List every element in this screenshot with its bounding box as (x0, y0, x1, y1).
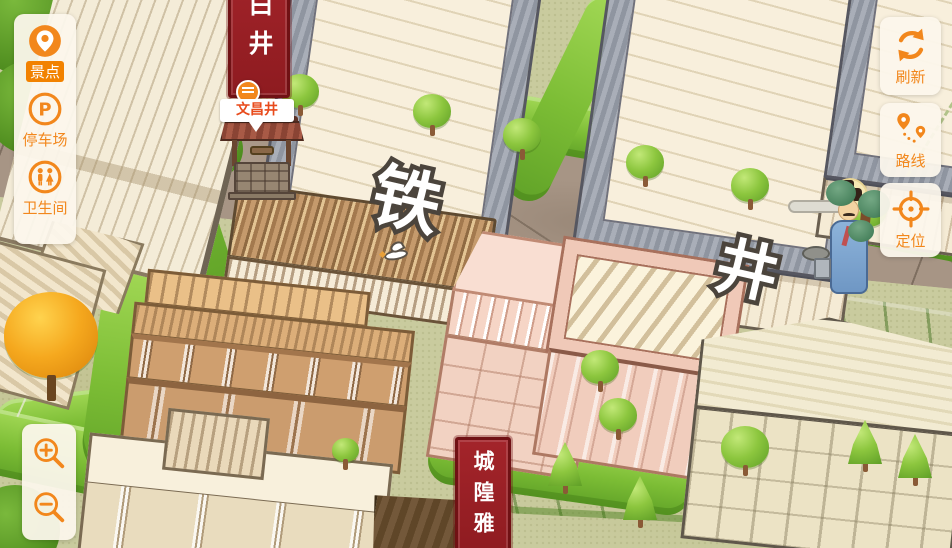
poi-label[interactable]: 文昌井 (220, 99, 294, 122)
tree (581, 350, 619, 392)
autumn-tree (4, 292, 98, 401)
well-body (234, 162, 290, 194)
top-banner: 白井 (228, 0, 290, 98)
tree-foliage (548, 442, 582, 486)
tree-foliage (848, 420, 882, 464)
tree-foliage (898, 434, 932, 478)
locate-icon (892, 190, 930, 228)
zoom-out-icon (30, 488, 68, 526)
tree-trunk (47, 375, 56, 401)
tree-foliage (623, 476, 657, 520)
tree (898, 434, 932, 486)
sidebar-panel: 景点 P 停车场 卫生间 (14, 14, 76, 244)
tree-foliage (581, 350, 619, 384)
bottom-banner-text: 城隍雅 (468, 450, 498, 548)
building-small-box (162, 408, 270, 480)
tree (623, 476, 657, 528)
well-windlass (250, 146, 274, 155)
tree-trunk (598, 381, 603, 392)
route-icon (892, 110, 930, 148)
locate-button[interactable]: 定位 (880, 183, 941, 257)
poi-label-arrow (249, 122, 263, 139)
tree-foliage (503, 118, 541, 152)
scholar-figure (786, 158, 882, 308)
well-base (228, 192, 296, 200)
sidebar-item-toilet[interactable]: 卫生间 (22, 159, 67, 218)
bucket (814, 258, 831, 279)
tree-trunk (748, 199, 753, 210)
tree (721, 426, 769, 476)
pine-foliage (848, 220, 874, 242)
pine-foliage (826, 180, 856, 206)
sidebar-label-toilet: 卫生间 (22, 197, 67, 218)
marker-glyph-icon (242, 87, 254, 89)
tree-foliage (731, 168, 769, 202)
tree (626, 145, 664, 187)
zoom-out-button[interactable] (30, 488, 68, 530)
svg-text:P: P (38, 99, 51, 120)
refresh-button[interactable]: 刷新 (880, 17, 941, 95)
route-label: 路线 (895, 150, 925, 171)
tree (731, 168, 769, 210)
sidebar-item-parking[interactable]: P 停车场 (22, 91, 67, 150)
tree-trunk (643, 176, 648, 187)
bottom-banner: 城隍雅 (455, 437, 511, 548)
zoom-panel (22, 424, 76, 540)
tree-foliage (599, 398, 637, 432)
tree (503, 118, 541, 160)
parking-icon: P (27, 91, 63, 127)
tree (548, 442, 582, 494)
refresh-label: 刷新 (895, 66, 925, 87)
route-button[interactable]: 路线 (880, 103, 941, 177)
sidebar-label-scenic: 景点 (26, 61, 64, 82)
tree-foliage (626, 145, 664, 179)
refresh-icon (892, 26, 930, 64)
tree-foliage (413, 94, 451, 128)
tree (332, 438, 359, 470)
tree-trunk (343, 459, 348, 470)
tree-trunk (430, 125, 435, 136)
tree-trunk (743, 465, 748, 476)
tree-foliage (4, 292, 98, 378)
bird (380, 242, 414, 264)
tree (599, 398, 637, 440)
scenic-spot-icon (27, 23, 63, 59)
tree (413, 94, 451, 136)
sidebar-item-scenic-spots[interactable]: 景点 (26, 23, 64, 82)
tree-trunk (298, 105, 303, 116)
scholar-mustache (843, 213, 855, 217)
scenic-map-canvas[interactable]: 铁 铁 井 井 白井 (0, 0, 952, 548)
zoom-in-icon (30, 434, 68, 472)
sidebar-label-parking: 停车场 (22, 129, 67, 150)
tree-foliage (721, 426, 769, 468)
tree (848, 420, 882, 472)
locate-label: 定位 (895, 230, 925, 251)
zoom-in-button[interactable] (30, 434, 68, 476)
tree-trunk (616, 429, 621, 440)
tree-trunk (520, 149, 525, 160)
toilet-icon (27, 159, 63, 195)
